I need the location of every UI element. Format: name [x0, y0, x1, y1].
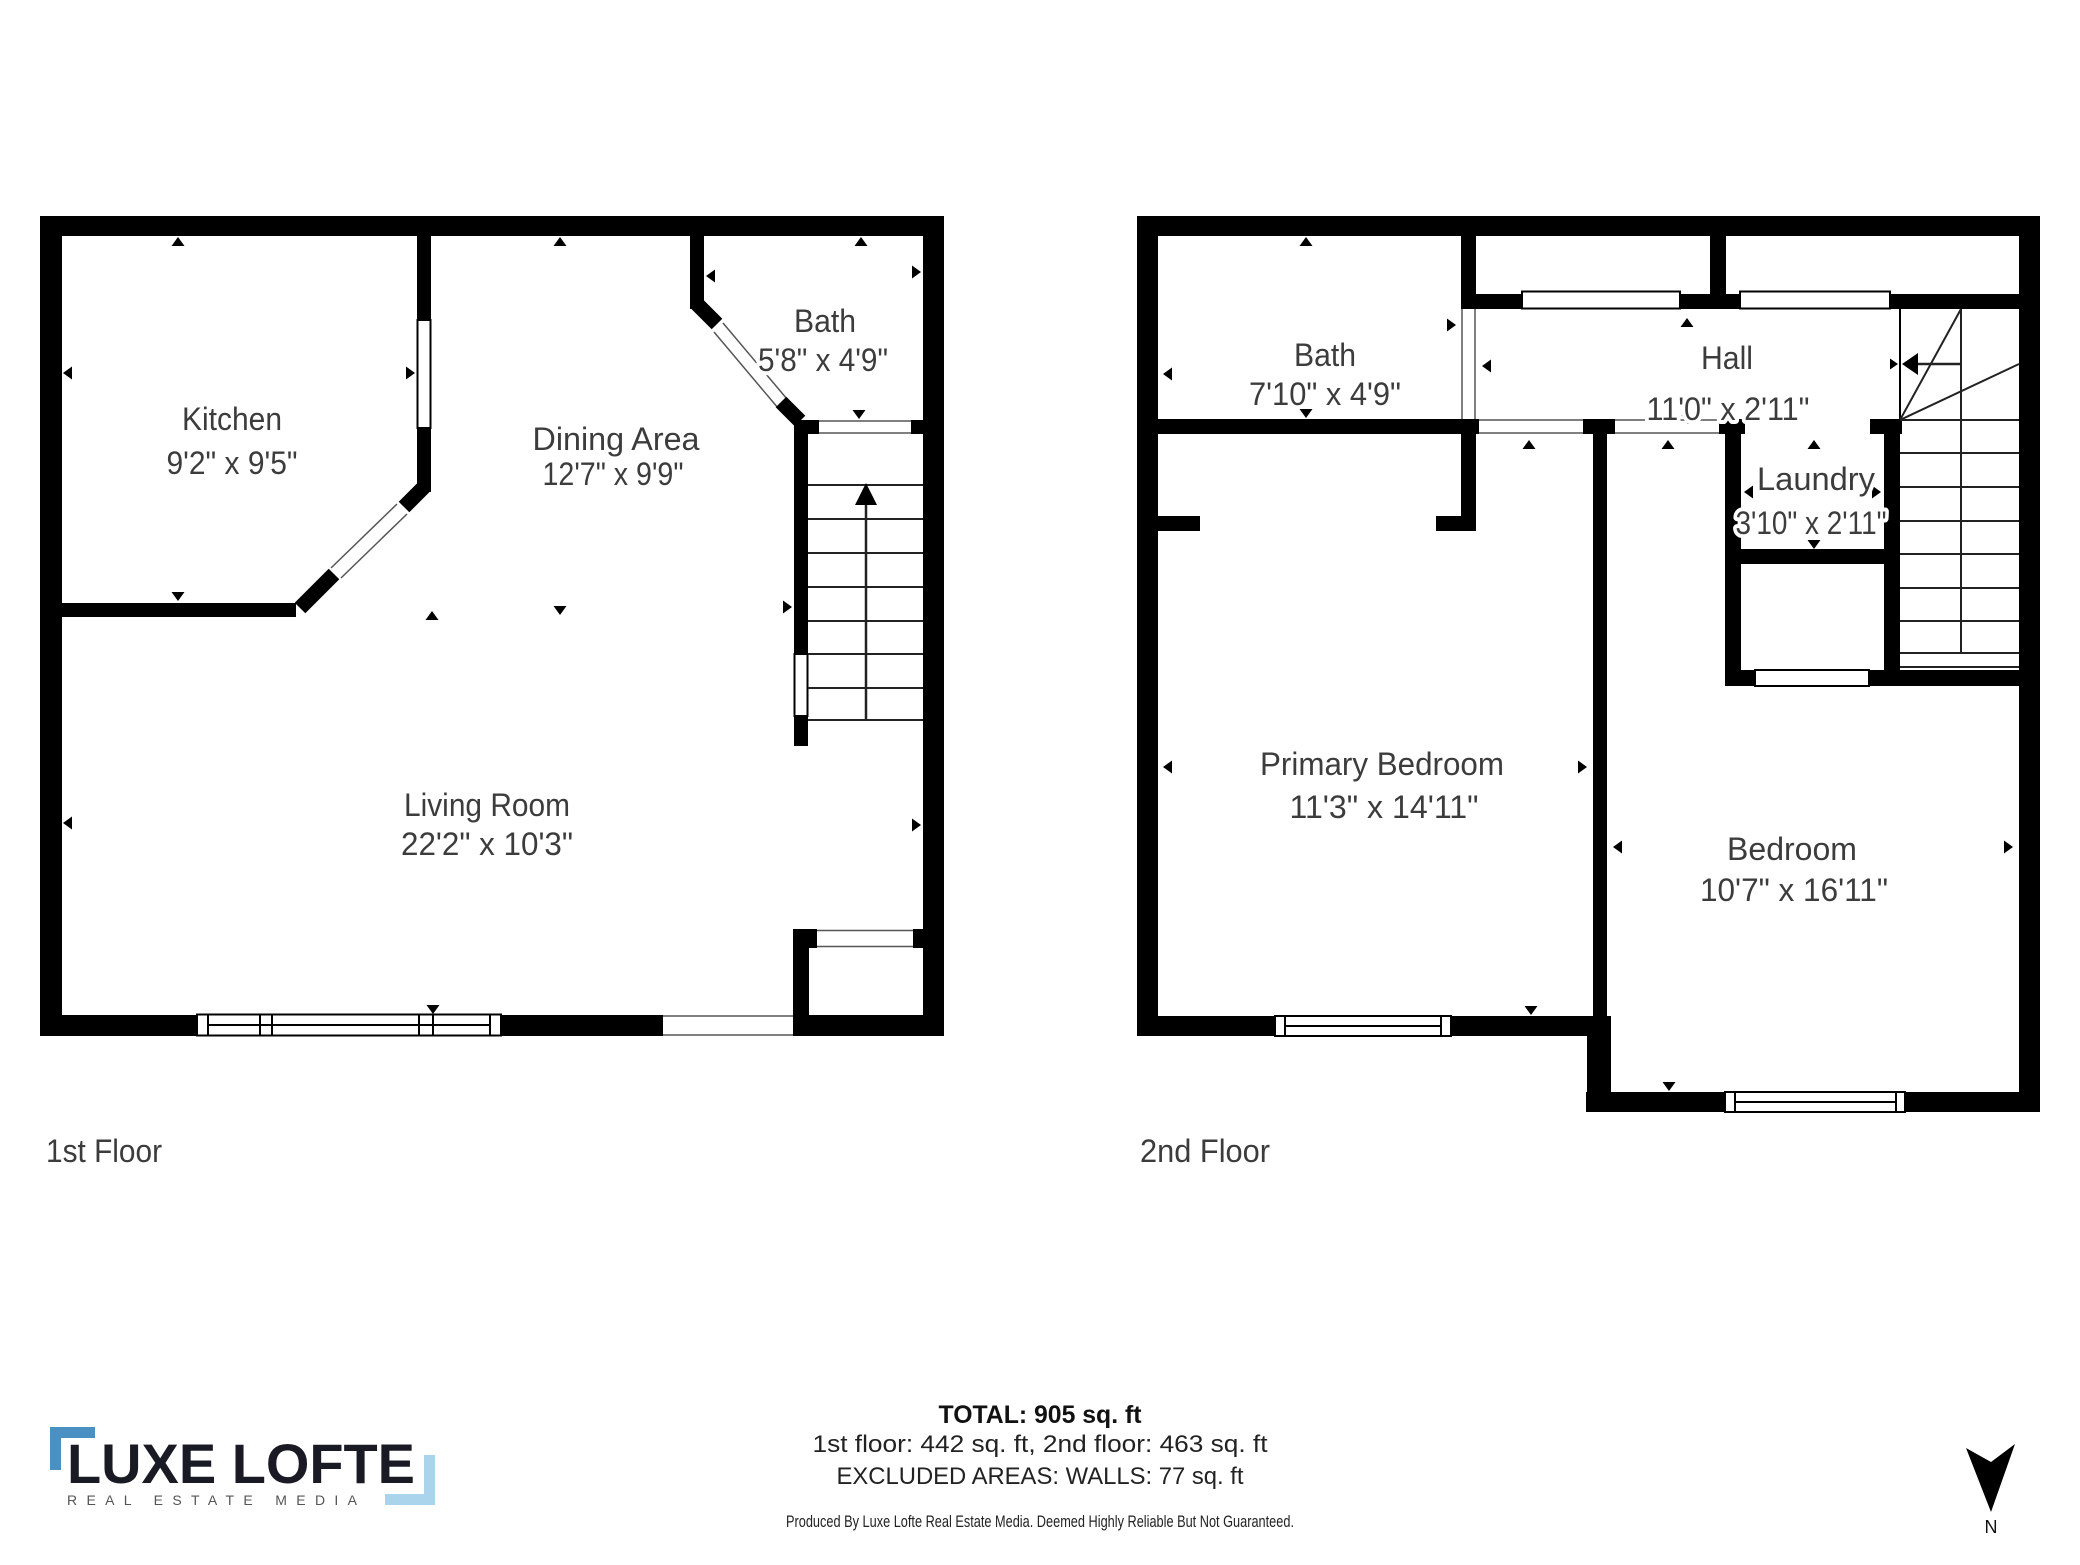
svg-text:N: N [1985, 1517, 1998, 1537]
svg-text:Living Room: Living Room [404, 787, 570, 823]
svg-text:3'10" x 2'11": 3'10" x 2'11" [1736, 505, 1887, 541]
svg-text:Produced By Luxe Lofte Real Es: Produced By Luxe Lofte Real Estate Media… [786, 1512, 1294, 1531]
svg-text:1st floor: 442 sq. ft, 2nd flo: 1st floor: 442 sq. ft, 2nd floor: 463 sq… [813, 1431, 1268, 1458]
svg-text:9'2" x 9'5": 9'2" x 9'5" [167, 445, 298, 481]
svg-text:Laundry: Laundry [1757, 461, 1875, 497]
svg-text:22'2" x 10'3": 22'2" x 10'3" [401, 826, 573, 862]
svg-text:Bedroom: Bedroom [1727, 831, 1857, 867]
svg-text:Kitchen: Kitchen [182, 401, 282, 437]
svg-text:Primary Bedroom: Primary Bedroom [1260, 746, 1504, 782]
svg-text:LUXE LOFTE: LUXE LOFTE [67, 1432, 415, 1495]
svg-text:Bath: Bath [794, 303, 856, 339]
svg-text:12'7" x 9'9": 12'7" x 9'9" [543, 456, 684, 492]
svg-text:Dining Area: Dining Area [533, 421, 700, 457]
svg-text:REAL ESTATE MEDIA: REAL ESTATE MEDIA [67, 1492, 358, 1508]
svg-text:10'7" x 16'11": 10'7" x 16'11" [1700, 872, 1888, 908]
svg-text:11'0" x 2'11": 11'0" x 2'11" [1647, 391, 1810, 427]
svg-text:TOTAL: 905 sq. ft: TOTAL: 905 sq. ft [939, 1401, 1143, 1429]
svg-text:7'10" x 4'9": 7'10" x 4'9" [1249, 376, 1401, 412]
svg-text:EXCLUDED AREAS: WALLS: 77 sq.: EXCLUDED AREAS: WALLS: 77 sq. ft [837, 1463, 1244, 1490]
svg-text:2nd Floor: 2nd Floor [1140, 1133, 1270, 1169]
svg-text:11'3" x 14'11": 11'3" x 14'11" [1290, 789, 1479, 825]
svg-text:Hall: Hall [1701, 340, 1753, 376]
svg-text:Bath: Bath [1294, 337, 1356, 373]
svg-text:5'8" x 4'9": 5'8" x 4'9" [758, 342, 888, 378]
svg-text:1st Floor: 1st Floor [46, 1133, 162, 1169]
